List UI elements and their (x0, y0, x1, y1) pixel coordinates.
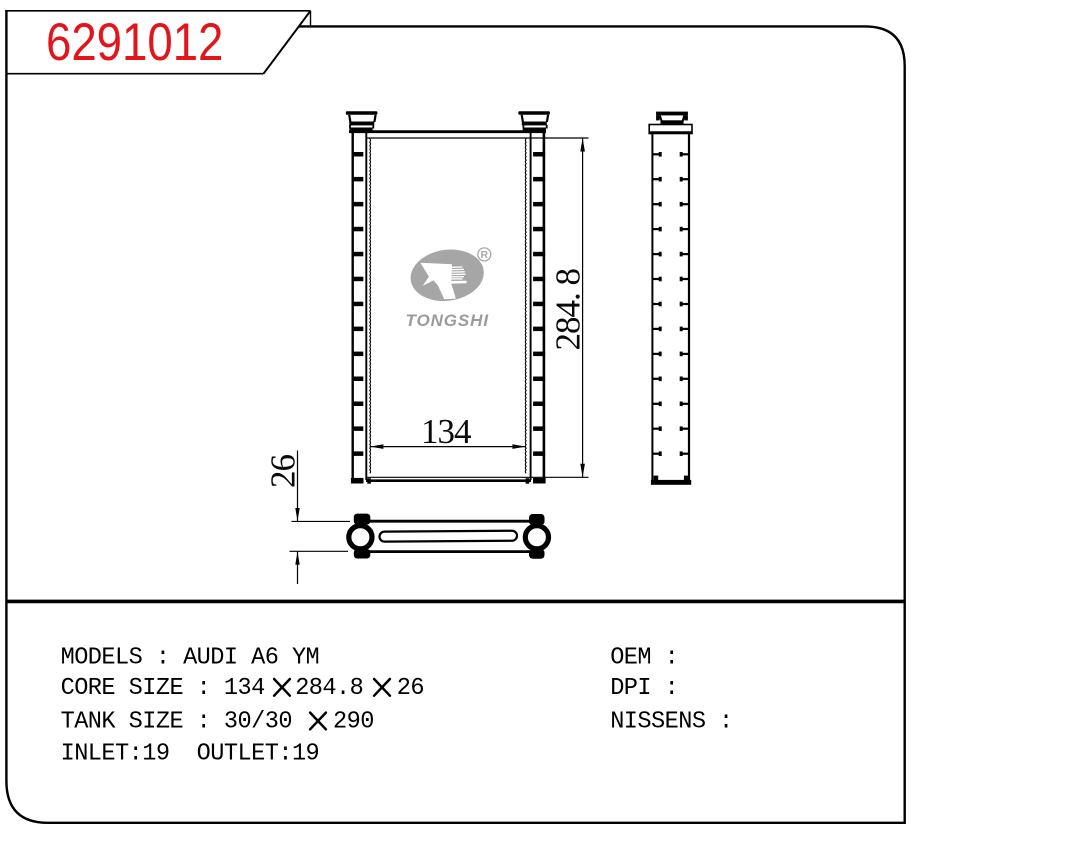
svg-text:284. 8: 284. 8 (549, 269, 588, 351)
svg-text:TONGSHI: TONGSHI (406, 311, 490, 330)
svg-text:R: R (481, 249, 489, 261)
svg-text:DPI :: DPI : (610, 675, 678, 702)
svg-text:6291012: 6291012 (46, 13, 223, 72)
svg-text:MODELS : AUDI A6 YM: MODELS : AUDI A6 YM (61, 645, 320, 672)
svg-text:26: 26 (264, 455, 303, 489)
svg-text:NISSENS :: NISSENS : (610, 709, 732, 736)
svg-text:INLET:19 OUTLET:19: INLET:19 OUTLET:19 (61, 741, 320, 768)
svg-text:134: 134 (421, 412, 471, 451)
svg-text:OEM :: OEM : (610, 645, 678, 672)
